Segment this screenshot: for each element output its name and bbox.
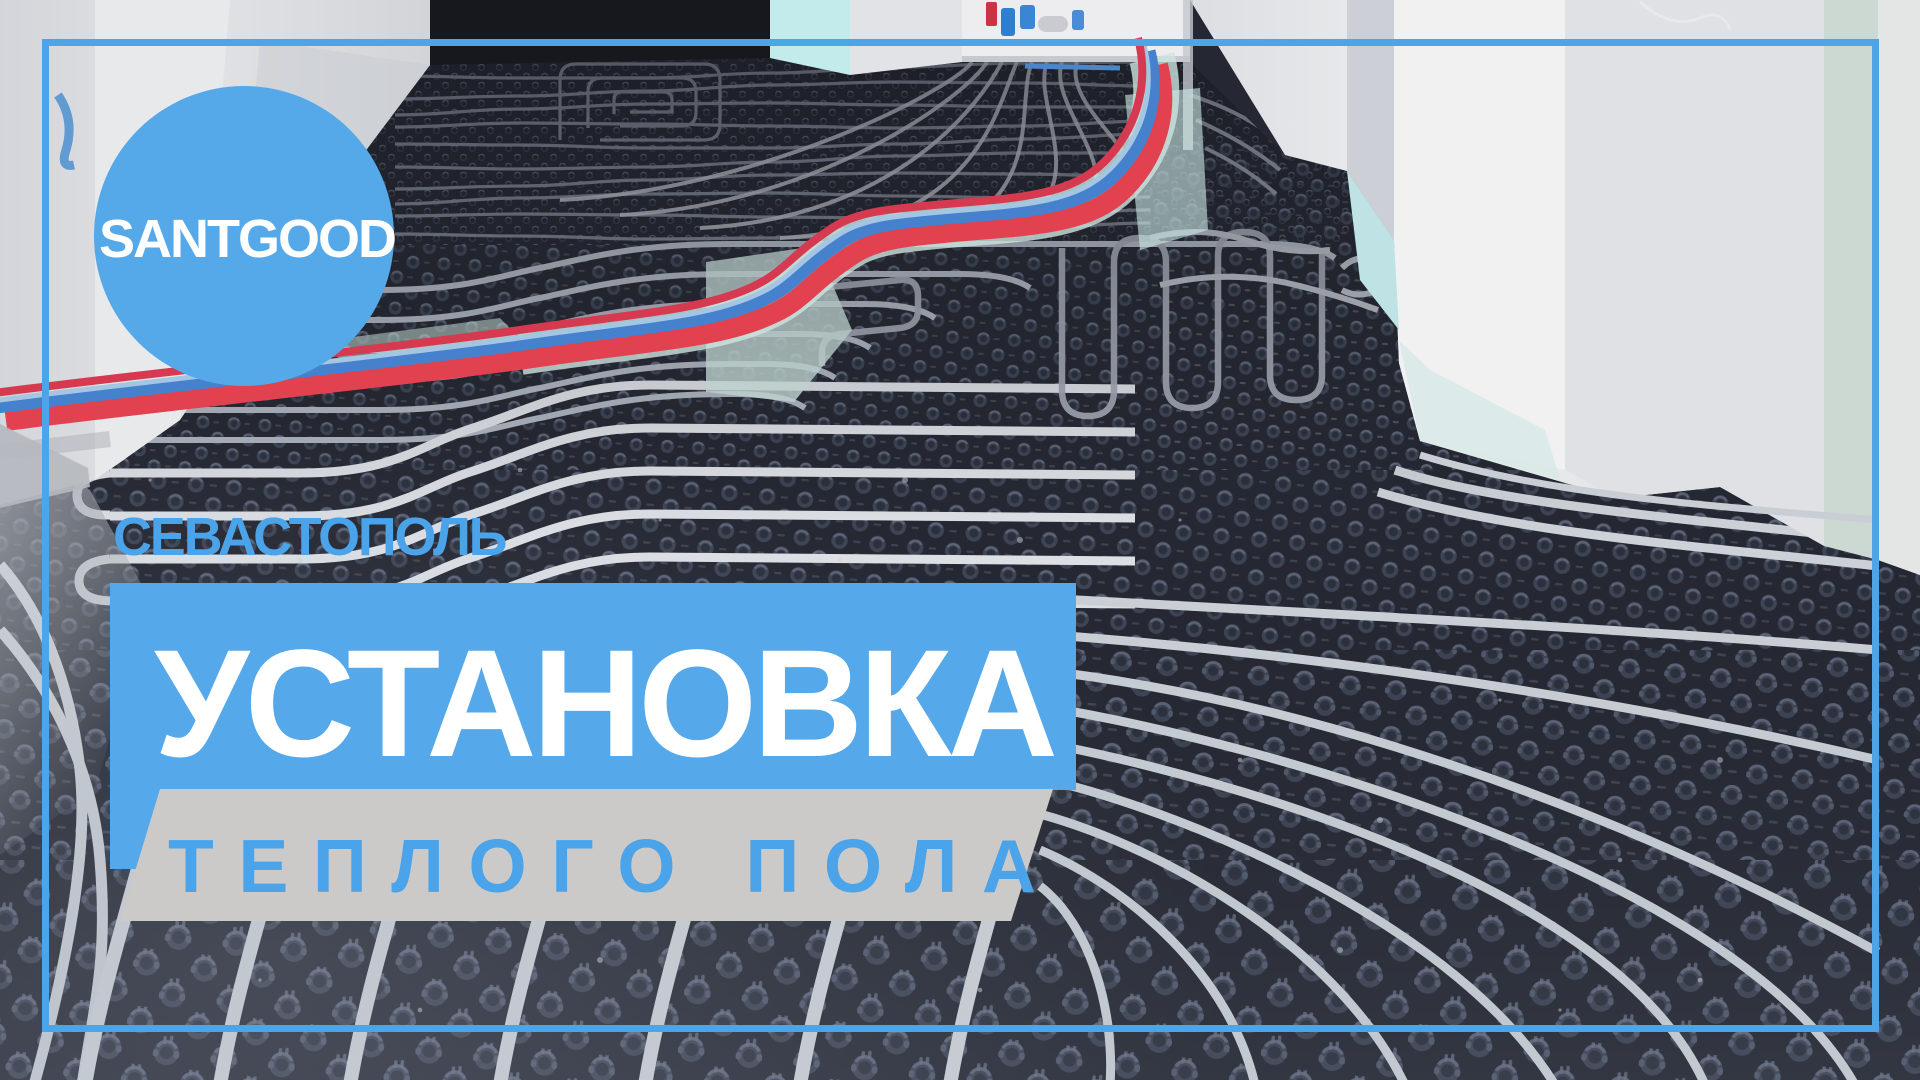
svg-text:SANTGOOD: SANTGOOD	[99, 209, 395, 269]
svg-text:ТЕПЛОГО ПОЛА: ТЕПЛОГО ПОЛА	[168, 824, 1061, 908]
svg-text:УСТАНОВКА: УСТАНОВКА	[154, 618, 1055, 789]
svg-text:СЕВАСТОПОЛЬ: СЕВАСТОПОЛЬ	[113, 507, 506, 567]
